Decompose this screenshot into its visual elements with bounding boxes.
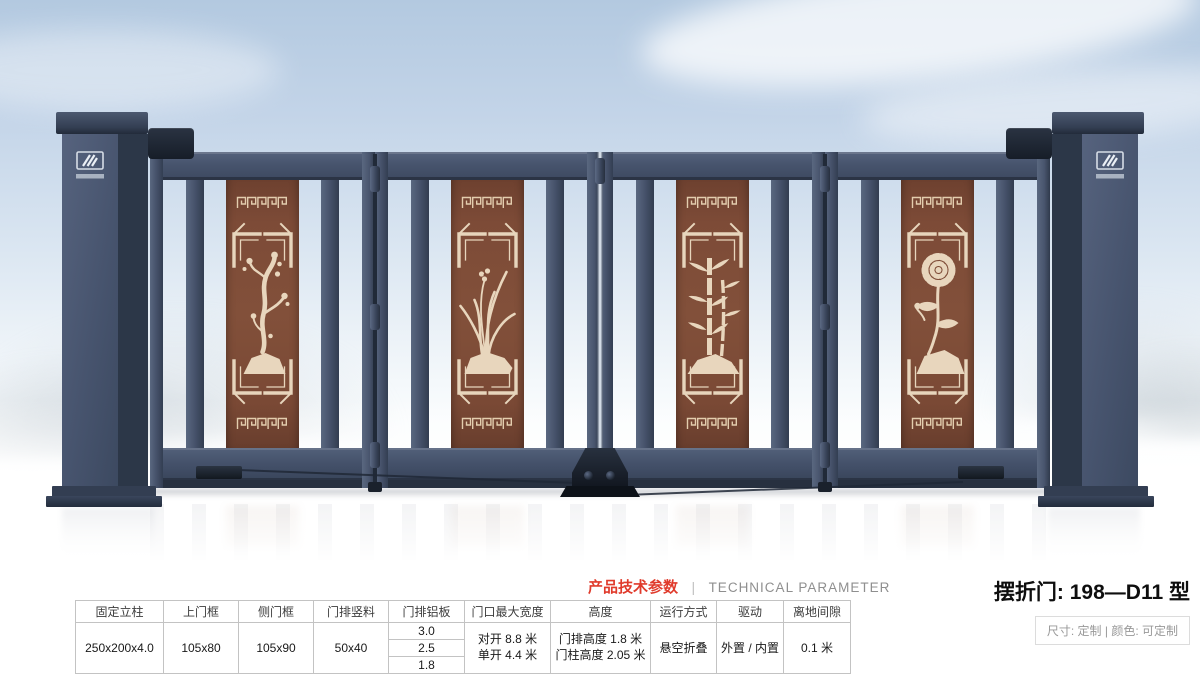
product-spec-badge: 尺寸: 定制 | 颜色: 可定制 [1035, 616, 1190, 645]
bamboo-motif-icon [687, 258, 741, 374]
brand-logo-icon [70, 150, 110, 184]
bottom-rail [825, 448, 1050, 480]
table-value-cell: 1.8 [389, 657, 465, 674]
table-header-cell: 运行方式 [651, 601, 717, 623]
table-header-row: 固定立柱 上门框 侧门框 门排竖料 门排铝板 门口最大宽度 高度 运行方式 驱动… [76, 601, 851, 623]
gate-slat [771, 176, 789, 454]
gate-section [375, 152, 600, 488]
value-line: 门柱高度 2.05 米 [553, 648, 648, 664]
hinge-knuckle [370, 304, 380, 330]
decor-panel [901, 172, 974, 454]
stile [150, 152, 163, 488]
gate-slat [996, 176, 1014, 454]
table-header-cell: 侧门框 [239, 601, 314, 623]
table-value-cell: 3.0 [389, 623, 465, 640]
meander-band-icon [463, 419, 512, 430]
decor-panel [676, 172, 749, 454]
bottom-rail [600, 448, 825, 480]
table-value-cell: 105x80 [164, 623, 239, 674]
left-drive-unit [148, 128, 194, 159]
hinge-knuckle [820, 166, 830, 192]
table-value-cell: 0.1 米 [784, 623, 851, 674]
table-value-cell: 外置 / 内置 [717, 623, 784, 674]
table-header-cell: 高度 [551, 601, 651, 623]
left-post [62, 132, 118, 494]
params-title-cn: 产品技术参数 [588, 579, 678, 596]
fold-hinge-seam [373, 154, 377, 486]
table-header-cell: 离地间隙 [784, 601, 851, 623]
right-post-side [1052, 134, 1082, 494]
top-rail [600, 152, 825, 180]
hinge-foot [368, 482, 382, 492]
table-header-cell: 驱动 [717, 601, 784, 623]
bottom-edge [150, 480, 375, 488]
meander-band-icon [688, 419, 737, 430]
gate-slat [186, 176, 204, 454]
hinge-knuckle [820, 442, 830, 468]
panel-ornament [901, 172, 974, 454]
right-post [1082, 132, 1138, 494]
table-row: 250x200x4.0 105x80 105x90 50x40 3.0 对开 8… [76, 623, 851, 640]
stile [1037, 152, 1050, 488]
table-header-cell: 上门框 [164, 601, 239, 623]
hinge-knuckle [370, 166, 380, 192]
brand-logo-icon [1090, 150, 1130, 184]
value-line: 对开 8.8 米 [467, 632, 548, 648]
table-header-cell: 门排竖料 [314, 601, 389, 623]
table-value-cell: 门排高度 1.8 米 门柱高度 2.05 米 [551, 623, 651, 674]
right-post-base [1038, 496, 1154, 507]
table-value-cell: 50x40 [314, 623, 389, 674]
meander-band-icon [688, 198, 737, 209]
floor-hinge-base [560, 486, 640, 497]
bolt [606, 471, 615, 480]
gate-slat [546, 176, 564, 454]
table-header-cell: 门口最大宽度 [465, 601, 551, 623]
right-post-cap [1052, 112, 1144, 134]
table-value-cell: 250x200x4.0 [76, 623, 164, 674]
hinge-foot [818, 482, 832, 492]
meander-band-icon [238, 198, 287, 209]
table-header-cell: 固定立柱 [76, 601, 164, 623]
value-line: 单开 4.4 米 [467, 648, 548, 664]
right-drive-unit [1006, 128, 1052, 159]
center-meeting-seam [597, 152, 603, 490]
gate-slat [411, 176, 429, 454]
decor-panel [226, 172, 299, 454]
product-sheet: 产品技术参数 | TECHNICAL PARAMETER 摆折门: 198—D1… [0, 0, 1200, 678]
plum-blossom-motif-icon [243, 252, 290, 374]
left-post-base [46, 496, 162, 507]
meander-band-icon [913, 198, 962, 209]
gate-scene [0, 0, 1200, 572]
bottom-pivot-bracket [958, 466, 1004, 479]
params-title-en: TECHNICAL PARAMETER [709, 580, 891, 595]
table-value-cell: 悬空折叠 [651, 623, 717, 674]
panel-ornament [676, 172, 749, 454]
gate-slat [636, 176, 654, 454]
left-post-side [118, 134, 148, 494]
gate-section [600, 152, 825, 488]
decor-panel [451, 172, 524, 454]
product-title: 摆折门: 198—D11 型 [994, 576, 1190, 606]
reflection-fade [0, 500, 1200, 572]
cloud [0, 30, 280, 110]
gate-slat [861, 176, 879, 454]
hinge-knuckle [820, 304, 830, 330]
panel-ornament [226, 172, 299, 454]
section-title: 产品技术参数 | TECHNICAL PARAMETER [588, 576, 890, 597]
panel-ornament [451, 172, 524, 454]
table-value-cell: 105x90 [239, 623, 314, 674]
value-line: 门排高度 1.8 米 [553, 632, 648, 648]
spec-table: 固定立柱 上门框 侧门框 门排竖料 门排铝板 门口最大宽度 高度 运行方式 驱动… [75, 600, 851, 674]
chrysanthemum-motif-icon [914, 257, 964, 375]
meander-band-icon [238, 419, 287, 430]
gate-section [150, 152, 375, 488]
table-header-cell: 门排铝板 [389, 601, 465, 623]
title-divider: | [691, 579, 695, 595]
top-rail [375, 152, 600, 180]
bottom-rail [150, 448, 375, 480]
hinge-knuckle [370, 442, 380, 468]
bolt [584, 471, 593, 480]
table-value-cell: 对开 8.8 米 单开 4.4 米 [465, 623, 551, 674]
gate-slat [321, 176, 339, 454]
left-post-cap [56, 112, 148, 134]
table-value-cell: 2.5 [389, 640, 465, 657]
gate-section [825, 152, 1050, 488]
fold-hinge-seam [823, 154, 827, 486]
hinge-knuckle [595, 158, 605, 184]
orchid-motif-icon [461, 268, 515, 374]
meander-band-icon [463, 198, 512, 209]
bottom-pivot-bracket [196, 466, 242, 479]
meander-band-icon [913, 419, 962, 430]
